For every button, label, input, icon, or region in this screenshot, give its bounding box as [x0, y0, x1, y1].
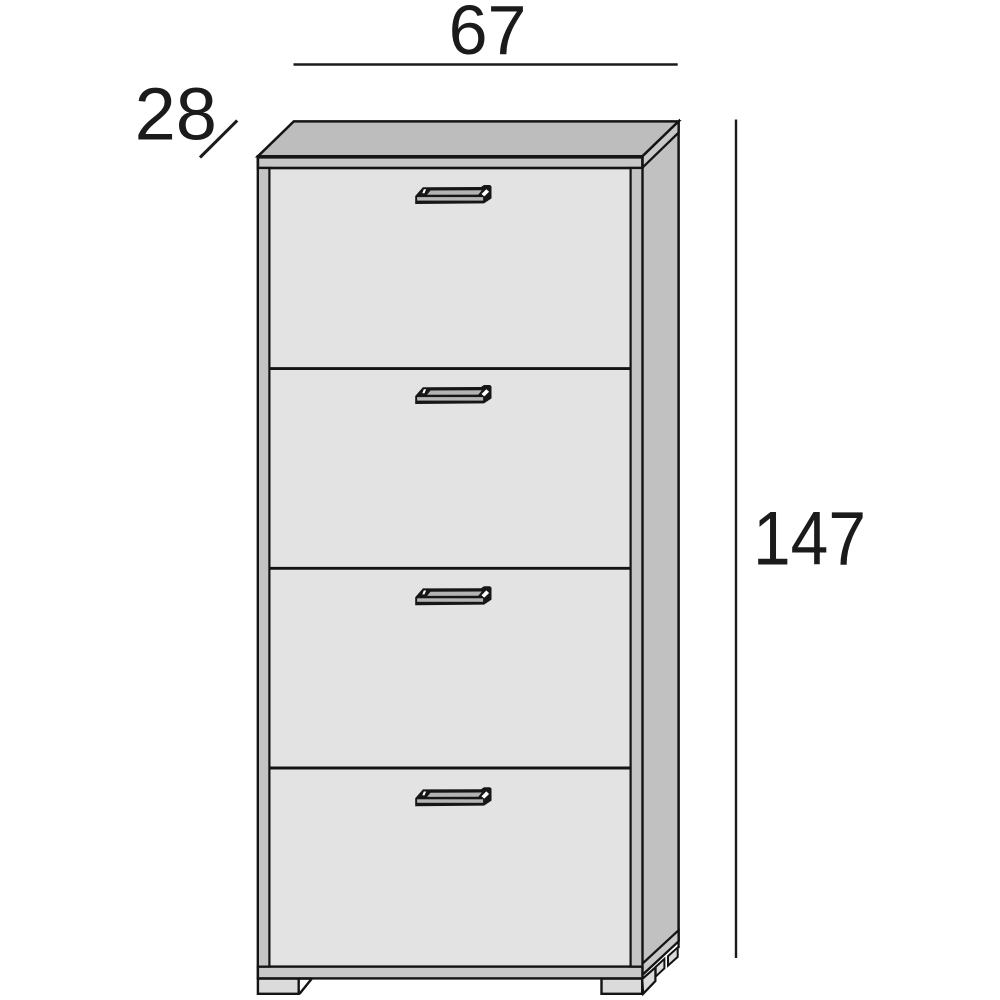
svg-text:28: 28 [135, 73, 217, 156]
svg-text:147: 147 [753, 497, 866, 582]
svg-text:67: 67 [449, 0, 527, 69]
